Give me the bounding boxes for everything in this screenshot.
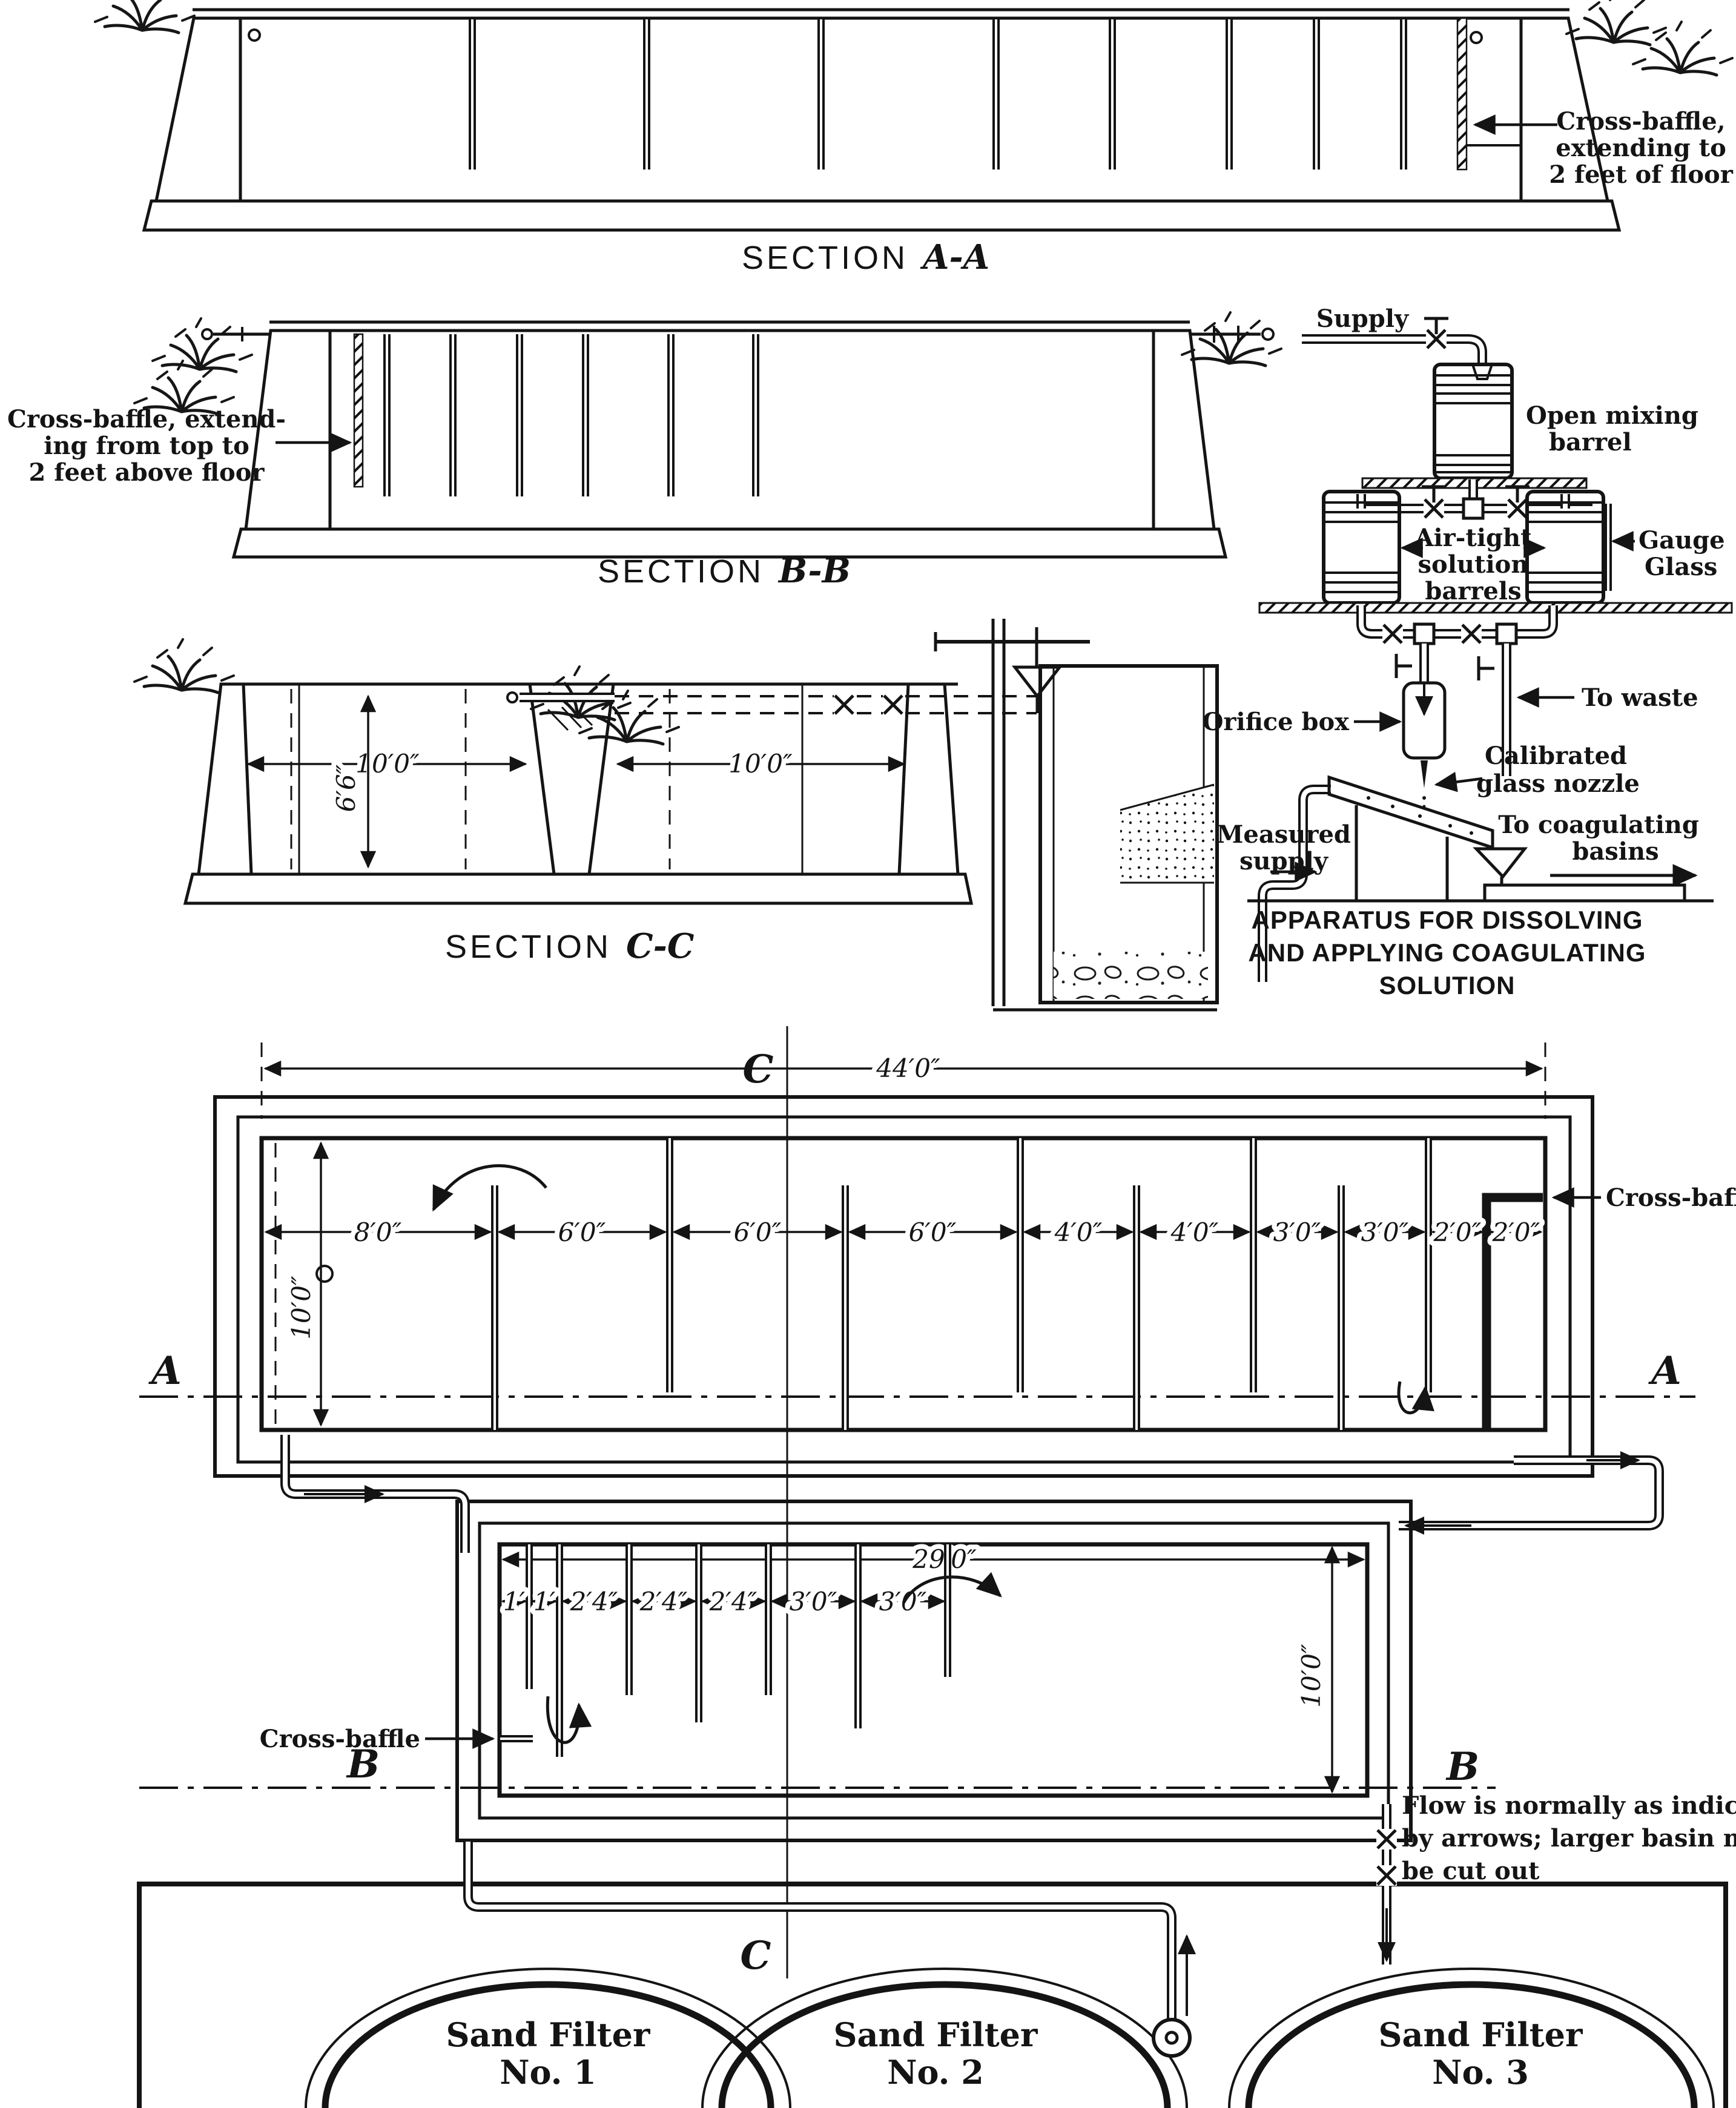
bay-dim: 4′0″: [1054, 1217, 1103, 1247]
filter-1-number: No. 1: [500, 2053, 596, 2092]
bay-dim: 3′0″: [1273, 1217, 1321, 1247]
solution-barrels-label2: solution: [1418, 550, 1529, 579]
bay-dim: 2′0″: [1433, 1217, 1482, 1247]
plan-small-cross-baffle-label: Cross-baffle: [260, 1725, 420, 1753]
funnel-icon: [1476, 849, 1525, 877]
pipe-cap-icon: [1262, 329, 1273, 340]
marker-a-right: A: [1648, 1348, 1682, 1394]
orifice-box-assembly: [1404, 683, 1445, 808]
valve-icon: [1461, 624, 1482, 644]
bb-note-line3: 2 feet above floor: [29, 458, 265, 487]
flow-note-line2: by arrows; larger basin may: [1402, 1824, 1736, 1853]
valve-icon: [883, 694, 903, 715]
section-aa-title-word: SECTION: [742, 240, 908, 276]
gravel-layer: [1054, 952, 1208, 999]
filter-2-number: No. 2: [887, 2053, 984, 2092]
filter-house: Sand Filter No. 1 Sand Filter No. 2 Sand…: [139, 1884, 1726, 2108]
barrel-icon: [1434, 364, 1512, 478]
drain-icon: [317, 1266, 332, 1282]
filter-arch-1: Sand Filter No. 1: [306, 1969, 790, 2108]
trough: [1329, 777, 1493, 848]
bay-dim: 1′: [533, 1587, 556, 1616]
filter-1-name: Sand Filter: [446, 2015, 650, 2054]
valve-handle-icon: [1396, 654, 1412, 678]
orifice-box-label: Orifice box: [1203, 708, 1350, 736]
cc-width-right: 10′0″: [728, 749, 793, 779]
sand-layer: [1120, 785, 1214, 883]
gauge-glass-label1: Gauge: [1639, 526, 1725, 555]
floor-slab: [144, 201, 1619, 230]
pipe-cap-icon: [202, 329, 212, 339]
grass-icon: [95, 0, 194, 33]
bell-mouth-icon: [1473, 364, 1492, 379]
apparatus-caption2: AND APPLYING COAGULATING: [1248, 938, 1646, 967]
section-bb: Cross-baffle, extend- ing from top to 2 …: [7, 312, 1281, 591]
plan-large-depth-dim: 10′0″: [286, 1276, 316, 1340]
valve-handle-icon: [1479, 656, 1494, 680]
tee-icon: [1414, 624, 1434, 644]
flow-note-line3: be cut out: [1402, 1857, 1540, 1885]
outer-wall: [215, 1097, 1592, 1476]
bay-dim: 6′0″: [558, 1217, 606, 1247]
bay-dim: 3′0″: [1361, 1217, 1409, 1247]
bay-dim: 2′0″: [1492, 1217, 1540, 1247]
to-basins-label1: To coagulating: [1498, 811, 1699, 839]
bay-dim: 1′: [503, 1587, 526, 1616]
outlet-weir-detail: [936, 619, 1217, 1010]
grass-icon: [1633, 22, 1732, 75]
pipe-cap-icon: [507, 693, 517, 702]
filter-3-name: Sand Filter: [1379, 2015, 1583, 2054]
left-wall: [156, 18, 240, 201]
nozzle-label2: glass nozzle: [1476, 769, 1640, 798]
large-basin-right-outlet-pipe: [1399, 1460, 1659, 1526]
plan-small-depth-dim: 10′0″: [1296, 1644, 1326, 1708]
mixing-barrel-label2: barrel: [1549, 428, 1632, 456]
cross-baffle-hatched: [354, 334, 363, 487]
bay-dim: 2′4″: [709, 1587, 757, 1616]
bay-dim: 4′0″: [1170, 1217, 1219, 1247]
aa-note-line2: extending to: [1556, 134, 1726, 162]
baffles: [472, 18, 1521, 170]
cc-width-left: 10′0″: [355, 749, 420, 779]
marker-c-bottom: C: [741, 1933, 771, 1978]
baffles: [495, 1138, 1543, 1430]
distribution-tray: [1485, 885, 1685, 901]
mixing-barrel-label1: Open mixing: [1526, 401, 1698, 430]
grass-icon: [1566, 0, 1666, 45]
bolt-icon: [249, 30, 260, 41]
bb-note-line1: Cross-baffle, extend-: [7, 405, 286, 433]
aa-note-line1: Cross-baffle,: [1556, 107, 1725, 136]
bay-dim: 6′0″: [734, 1217, 782, 1247]
bolt-icon: [1471, 32, 1482, 43]
grass-icon: [134, 639, 234, 693]
floor: [1259, 603, 1732, 613]
plan-large-overall-dim: 44′0″: [876, 1053, 940, 1083]
wall-inner-line: [238, 1117, 1570, 1462]
bay-dim: 3′0″: [790, 1587, 837, 1616]
solution-barrels-label1: Air-tight: [1414, 524, 1532, 552]
cross-baffle-hatched: [1457, 18, 1467, 170]
filter-arch-3: Sand Filter No. 3: [1229, 1969, 1714, 2108]
section-bb-title-word: SECTION: [598, 553, 764, 590]
bay-dim: 2′4″: [639, 1587, 688, 1616]
valve-icon: [834, 694, 854, 715]
filter-arch-2: Sand Filter No. 2: [702, 1969, 1187, 2108]
open-mixing-barrel: [1434, 364, 1512, 478]
section-cc: 10′0″ 10′0″ 6′6″ SECTION C-C: [134, 619, 1217, 1010]
bay-dim: 8′0″: [354, 1217, 402, 1247]
filter-3-number: No. 3: [1432, 2053, 1529, 2092]
basin-top-edge: [269, 322, 1190, 331]
cross-wall-pipe: [507, 693, 615, 730]
apparatus: Supply Open mixing barrel Air-tight solu…: [1203, 305, 1732, 1000]
valve-icon: [1376, 1865, 1397, 1886]
valve-icon: [1376, 1829, 1397, 1849]
bay-dimension-string: 8′0″ 6′0″ 6′0″ 6′0″ 4′0″ 4′0″ 3′0″ 3′0″ …: [266, 1217, 1541, 1247]
apparatus-caption1: APPARATUS FOR DISSOLVING: [1251, 906, 1643, 934]
tee-icon: [1497, 624, 1516, 644]
cc-depth: 6′6″: [331, 764, 361, 812]
tee-icon: [1464, 499, 1483, 518]
large-basin-left-outlet-pipe: [285, 1435, 465, 1553]
to-waste-label: To waste: [1582, 683, 1698, 712]
outlet-channel: [993, 619, 1004, 1006]
measured-supply-label1: Measured: [1216, 820, 1351, 849]
right-wall: [1153, 331, 1214, 529]
basin-top-edge: [193, 10, 1569, 18]
solution-barrels-label3: barrels: [1425, 577, 1521, 605]
section-bb-title-letters: B-B: [777, 551, 851, 591]
filter-2-name: Sand Filter: [834, 2015, 1038, 2054]
plan-small-basin: 29′0″ 1′ 1′ 2′4″ 2′4″ 2′4″ 3′0″ 3′0″ 10′…: [260, 1501, 1736, 1885]
bb-note-line2: ing from top to: [44, 432, 249, 460]
section-aa: Cross-baffle, extending to 2 feet of flo…: [95, 0, 1734, 277]
plan-large-basin: 44′0″ 8′0″ 6′0″ 6′0″ 6′0″ 4′0″ 4′0″ 3′0″…: [215, 1042, 1736, 1476]
flow-note-line1: Flow is normally as indicated: [1402, 1791, 1736, 1820]
section-aa-title-letters: A-A: [920, 237, 989, 277]
flow-curve-arrow-icon: [547, 1696, 579, 1742]
left-wall: [199, 684, 251, 874]
baffles: [500, 1544, 948, 1757]
flow-curve-arrow-icon: [434, 1166, 546, 1210]
bay-dim: 2′4″: [570, 1587, 618, 1616]
filter-supply-pipe: [1376, 1804, 1397, 1965]
valve-wheel-icon: [1153, 2020, 1190, 2056]
section-cc-title-letters: C-C: [626, 926, 695, 966]
to-basins-label2: basins: [1572, 837, 1658, 866]
baffles: [354, 334, 756, 496]
floor-slab: [185, 874, 971, 903]
marker-a-left: A: [148, 1348, 182, 1394]
inlet-pipe-dashed: [615, 696, 1037, 713]
coagulating-basin-drawing-page: Cross-baffle, extending to 2 feet of flo…: [0, 0, 1736, 2108]
supply-label: Supply: [1316, 305, 1410, 333]
glass-nozzle-icon: [1421, 760, 1428, 788]
bay-dim: 6′0″: [909, 1217, 957, 1247]
grass-icon: [153, 318, 252, 372]
plan-large-cross-baffle-label: Cross-baffle: [1606, 1184, 1736, 1212]
aa-note-line3: 2 feet of floor: [1549, 160, 1734, 189]
engineering-drawing: Cross-baffle, extending to 2 feet of flo…: [0, 0, 1736, 2108]
valve-icon: [1382, 624, 1403, 644]
nozzle-label1: Calibrated: [1485, 742, 1627, 770]
section-cc-title-word: SECTION: [445, 929, 612, 965]
apparatus-caption3: SOLUTION: [1379, 971, 1516, 1000]
leader-arrow-icon: [1436, 779, 1482, 785]
bay-dimension-string: 1′ 1′ 2′4″ 2′4″ 2′4″ 3′0″ 3′0″: [503, 1587, 944, 1616]
marker-b-right: B: [1445, 1744, 1479, 1790]
gauge-glass-label2: Glass: [1645, 553, 1717, 581]
